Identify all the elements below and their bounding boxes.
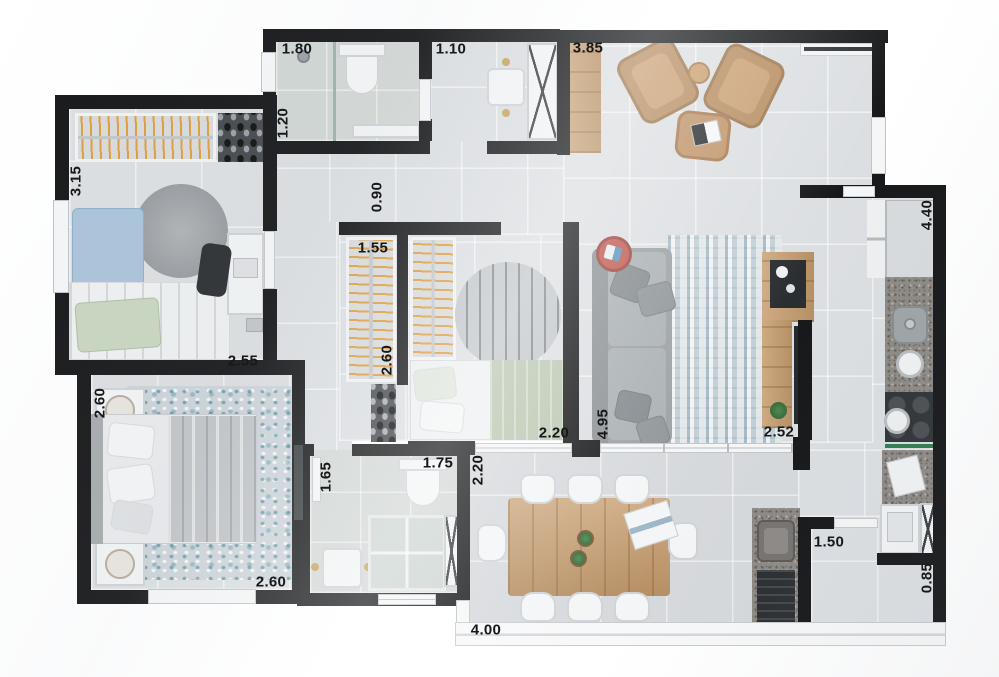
dimension-label: 4.95 (596, 409, 611, 439)
dimension-labels-layer: 1.801.103.851.203.150.901.552.602.552.60… (0, 0, 999, 677)
dimension-label: 2.20 (471, 455, 486, 485)
floor-plan: 1.801.103.851.203.150.901.552.602.552.60… (0, 0, 999, 677)
dimension-label: 1.65 (319, 462, 334, 492)
dimension-label: 2.52 (764, 425, 794, 440)
dimension-label: 1.20 (276, 108, 291, 138)
dimension-label: 4.40 (920, 200, 935, 230)
dimension-label: 1.75 (423, 456, 453, 471)
dimension-label: 1.55 (358, 241, 388, 256)
dimension-label: 2.20 (539, 426, 569, 441)
dimension-label: 3.15 (69, 166, 84, 196)
dimension-label: 1.10 (436, 42, 466, 57)
dimension-label: 1.80 (282, 42, 312, 57)
dimension-label: 0.90 (370, 182, 385, 212)
dimension-label: 2.55 (228, 354, 258, 369)
dimension-label: 0.85 (920, 563, 935, 593)
dimension-label: 1.50 (814, 535, 844, 550)
dimension-label: 4.00 (471, 623, 501, 638)
dimension-label: 2.60 (380, 345, 395, 375)
dimension-label: 3.85 (573, 41, 603, 56)
dimension-label: 2.60 (93, 388, 108, 418)
dimension-label: 2.60 (256, 575, 286, 590)
